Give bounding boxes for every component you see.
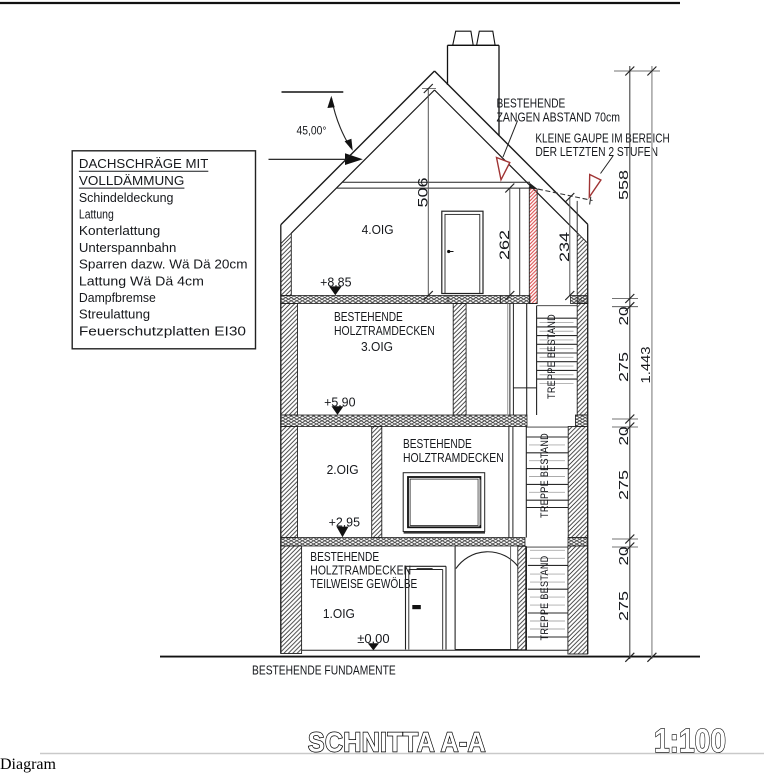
svg-text:DER LETZTEN 2 STUFEN: DER LETZTEN 2 STUFEN — [535, 144, 658, 159]
svg-text:SCHNITTA A-A: SCHNITTA A-A — [308, 727, 486, 757]
svg-text:3.OIG: 3.OIG — [361, 339, 393, 354]
svg-text:Konterlattung: Konterlattung — [79, 223, 160, 238]
svg-text:275: 275 — [616, 352, 631, 382]
svg-text:1:100: 1:100 — [654, 722, 726, 756]
svg-text:1.OIG: 1.OIG — [323, 606, 355, 621]
svg-text:BESTEHENDE: BESTEHENDE — [334, 309, 403, 324]
svg-text:Schindeldeckung: Schindeldeckung — [79, 190, 173, 205]
svg-text:TREPPE BESTAND: TREPPE BESTAND — [539, 556, 551, 641]
svg-text:20: 20 — [616, 307, 631, 326]
svg-text:VOLLDÄMMUNG: VOLLDÄMMUNG — [79, 173, 184, 188]
svg-text:HOLZTRAMDECKEN: HOLZTRAMDECKEN — [403, 450, 504, 465]
svg-text:DACHSCHRÄGE MIT: DACHSCHRÄGE MIT — [79, 156, 208, 171]
svg-text:Lattung Wä Dä 4cm: Lattung Wä Dä 4cm — [79, 273, 204, 288]
svg-text:1.443: 1.443 — [638, 347, 653, 384]
svg-text:Lattung: Lattung — [79, 207, 114, 222]
svg-text:Dampfbremse: Dampfbremse — [79, 290, 156, 305]
svg-text:2.OIG: 2.OIG — [327, 462, 359, 477]
svg-text:BESTEHENDE FUNDAMENTE: BESTEHENDE FUNDAMENTE — [252, 663, 396, 678]
svg-text:TREPPE BESTAND: TREPPE BESTAND — [539, 433, 551, 518]
svg-text:275: 275 — [616, 591, 631, 621]
svg-text:506: 506 — [414, 177, 430, 207]
svg-text:HOLZTRAMDECKEN: HOLZTRAMDECKEN — [334, 323, 435, 338]
svg-text:Streulattung: Streulattung — [79, 307, 150, 322]
svg-text:Sparren dazw. Wä Dä 20cm: Sparren dazw. Wä Dä 20cm — [79, 257, 248, 272]
svg-text:TEILWEISE GEWÖLBE: TEILWEISE GEWÖLBE — [310, 576, 417, 591]
svg-text:4.OIG: 4.OIG — [362, 222, 394, 237]
svg-text:558: 558 — [616, 170, 631, 200]
svg-text:45,00°: 45,00° — [297, 124, 327, 138]
svg-text:234: 234 — [556, 232, 572, 262]
svg-text:BESTEHENDE: BESTEHENDE — [497, 96, 566, 111]
svg-text:ZANGEN ABSTAND 70cm: ZANGEN ABSTAND 70cm — [497, 110, 621, 125]
svg-text:Unterspannbahn: Unterspannbahn — [79, 240, 176, 255]
svg-text:275: 275 — [616, 470, 631, 500]
svg-text:20: 20 — [616, 427, 631, 446]
svg-text:262: 262 — [496, 230, 512, 260]
svg-text:Feuerschutzplatten EI30: Feuerschutzplatten EI30 — [79, 323, 246, 338]
svg-text:20: 20 — [616, 547, 631, 566]
svg-text:TREPPE BESTAND: TREPPE BESTAND — [546, 314, 558, 399]
